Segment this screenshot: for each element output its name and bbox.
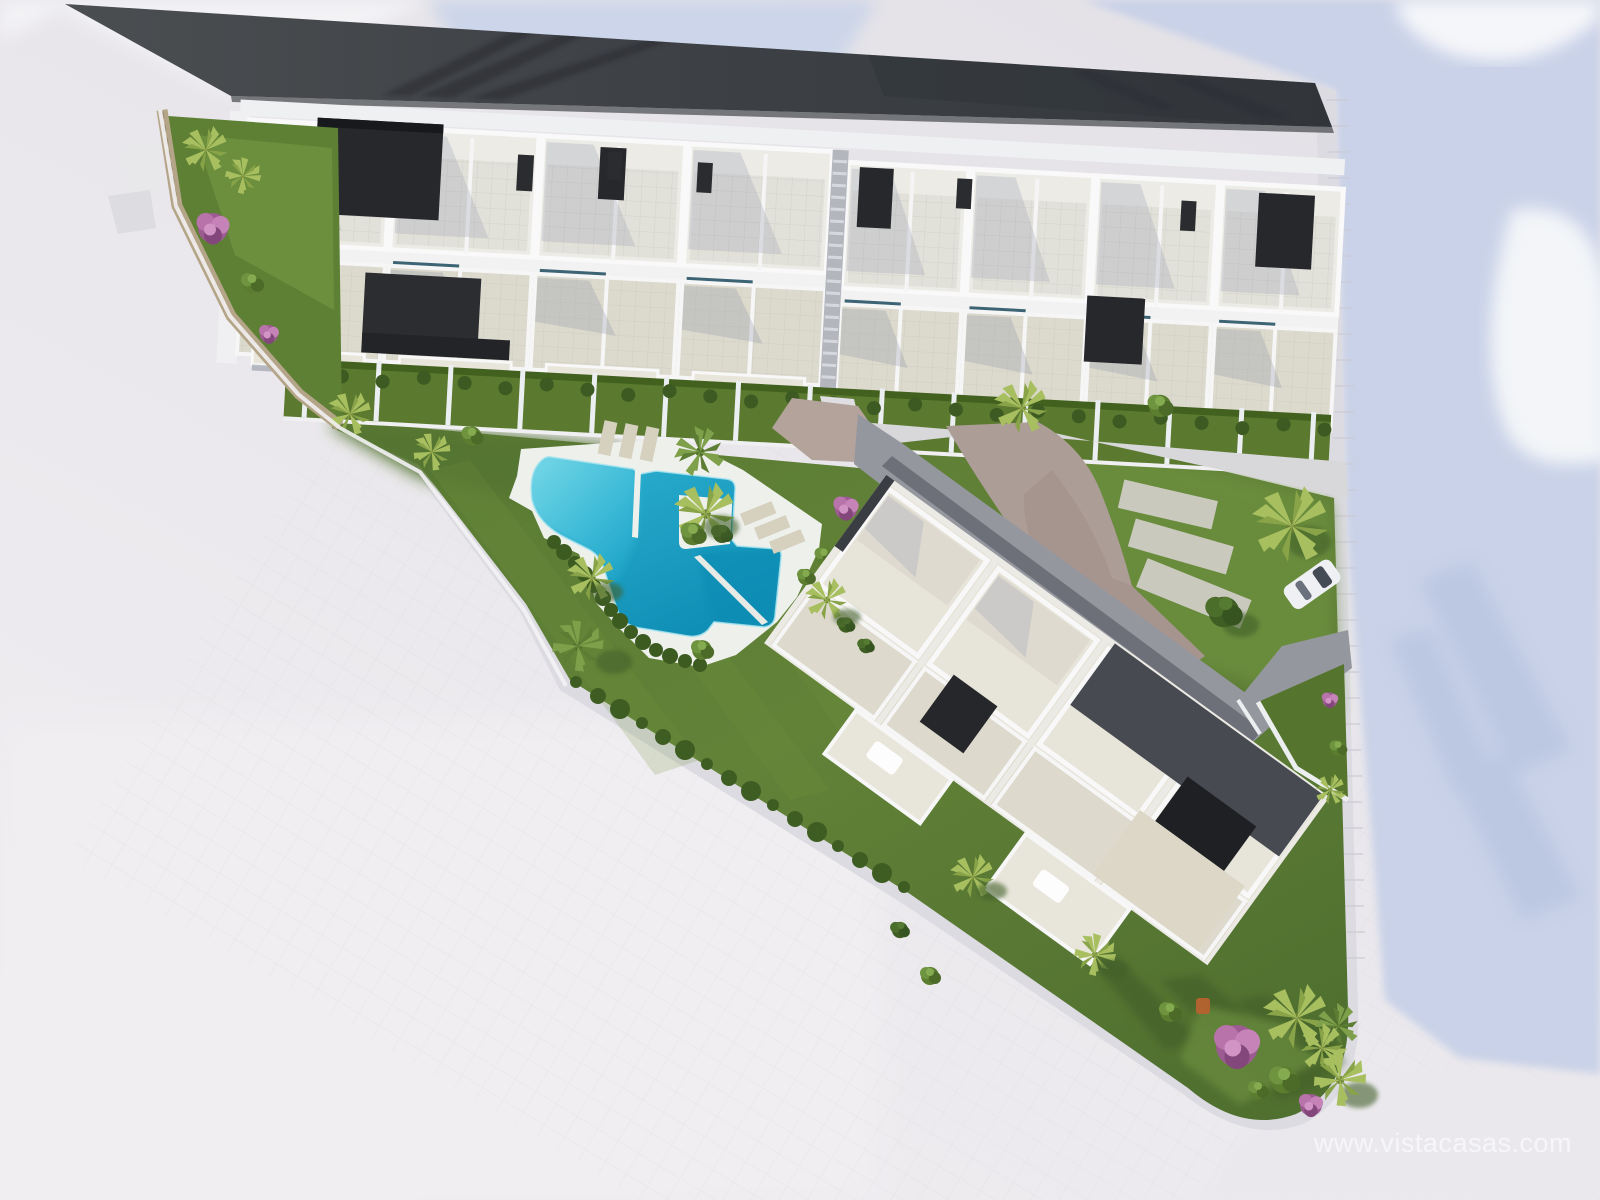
svg-text:www.vistacasas.com: www.vistacasas.com	[1313, 1128, 1572, 1158]
